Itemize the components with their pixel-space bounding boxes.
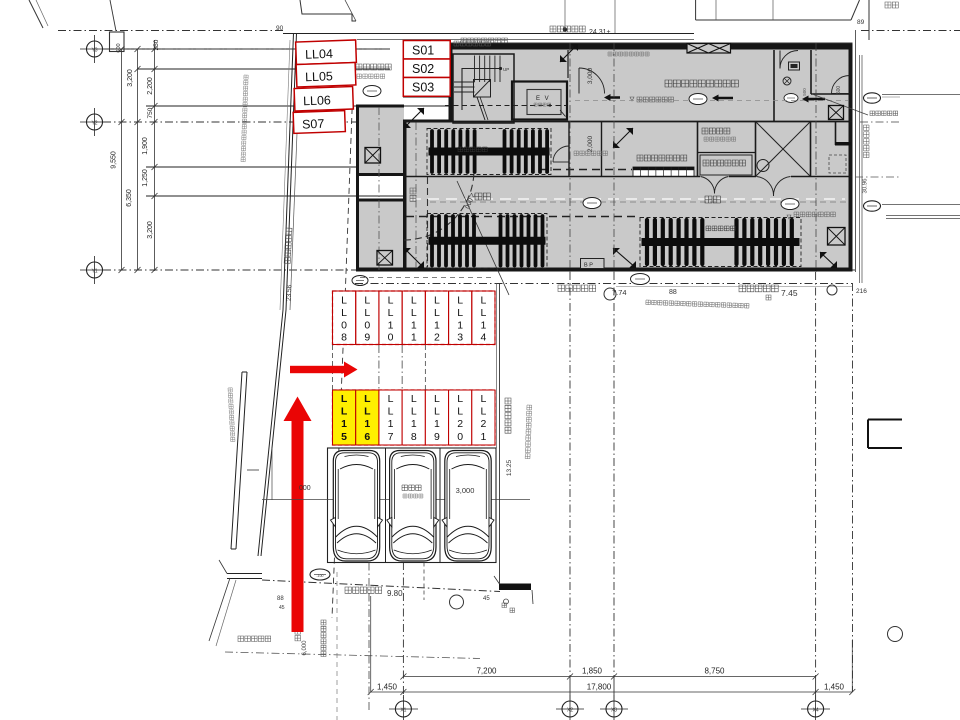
svg-text:1: 1 bbox=[341, 418, 347, 430]
svg-text:750: 750 bbox=[147, 107, 154, 118]
svg-text:S07: S07 bbox=[302, 117, 325, 132]
svg-text:2: 2 bbox=[457, 418, 463, 430]
svg-text:-100: -100 bbox=[316, 574, 323, 578]
svg-text:1,900: 1,900 bbox=[142, 137, 149, 155]
svg-text:9,550: 9,550 bbox=[111, 151, 118, 169]
svg-text:1,450: 1,450 bbox=[377, 683, 398, 692]
svg-text:Y2: Y2 bbox=[91, 121, 97, 127]
svg-text:X3: X3 bbox=[611, 708, 617, 714]
svg-text:L: L bbox=[434, 393, 440, 405]
svg-text:0: 0 bbox=[388, 332, 394, 344]
svg-text:LL04: LL04 bbox=[305, 47, 333, 62]
svg-text:8: 8 bbox=[411, 431, 417, 443]
svg-text:6,350: 6,350 bbox=[126, 189, 133, 207]
svg-text:13.25: 13.25 bbox=[506, 459, 513, 476]
svg-text:L: L bbox=[411, 307, 417, 319]
svg-text:2: 2 bbox=[480, 418, 486, 430]
svg-text:L: L bbox=[364, 406, 371, 418]
svg-text:88: 88 bbox=[277, 596, 284, 602]
svg-text:8: 8 bbox=[341, 332, 347, 344]
svg-text:LL05: LL05 bbox=[305, 69, 333, 84]
svg-text:1,450: 1,450 bbox=[824, 683, 845, 692]
svg-text:89: 89 bbox=[857, 19, 865, 26]
svg-text:1: 1 bbox=[457, 319, 463, 331]
svg-text:L: L bbox=[434, 307, 440, 319]
svg-text:L: L bbox=[411, 393, 417, 405]
svg-text:L: L bbox=[457, 406, 463, 418]
svg-text:L: L bbox=[341, 295, 347, 307]
svg-text:1: 1 bbox=[388, 319, 394, 331]
svg-text:L: L bbox=[364, 393, 371, 405]
svg-text:1: 1 bbox=[364, 418, 370, 430]
svg-text:L: L bbox=[388, 406, 394, 418]
svg-text:6: 6 bbox=[364, 431, 370, 443]
svg-text:X1: X1 bbox=[400, 708, 406, 714]
svg-text:2,200: 2,200 bbox=[147, 77, 154, 95]
svg-text:1: 1 bbox=[434, 319, 440, 331]
svg-text:216: 216 bbox=[856, 288, 867, 295]
svg-text:L: L bbox=[480, 406, 486, 418]
svg-text:90: 90 bbox=[276, 25, 284, 32]
svg-text:2,000: 2,000 bbox=[587, 135, 594, 152]
svg-text:L: L bbox=[434, 295, 440, 307]
svg-text:23.56: 23.56 bbox=[286, 284, 294, 301]
svg-text:6,000: 6,000 bbox=[302, 640, 308, 656]
svg-text:7,200: 7,200 bbox=[476, 667, 497, 676]
svg-text:3,000: 3,000 bbox=[587, 67, 594, 84]
svg-text:Y3: Y3 bbox=[91, 48, 97, 54]
svg-text:3,000: 3,000 bbox=[456, 486, 475, 495]
svg-text:Y1: Y1 bbox=[91, 269, 97, 275]
svg-text:E V: E V bbox=[536, 96, 550, 102]
svg-text:5: 5 bbox=[341, 431, 347, 443]
svg-text:S02: S02 bbox=[412, 62, 434, 76]
svg-text:L: L bbox=[411, 295, 417, 307]
svg-text:1: 1 bbox=[388, 418, 394, 430]
svg-text:L: L bbox=[341, 393, 348, 405]
svg-text:45: 45 bbox=[279, 605, 285, 611]
svg-text:1: 1 bbox=[411, 332, 417, 344]
svg-text:3,200: 3,200 bbox=[147, 221, 154, 239]
svg-text:1: 1 bbox=[411, 319, 417, 331]
svg-text:9: 9 bbox=[364, 332, 370, 344]
svg-text:L: L bbox=[457, 295, 463, 307]
svg-text:X2: X2 bbox=[567, 708, 573, 714]
svg-text:S03: S03 bbox=[412, 81, 434, 95]
svg-text:LL06: LL06 bbox=[303, 93, 331, 108]
svg-text:1: 1 bbox=[480, 431, 486, 443]
svg-text:8,750: 8,750 bbox=[704, 667, 725, 676]
svg-text:1: 1 bbox=[480, 319, 486, 331]
svg-text:88: 88 bbox=[669, 289, 677, 296]
svg-text:7: 7 bbox=[388, 431, 394, 443]
svg-text:L: L bbox=[434, 406, 440, 418]
svg-text:9: 9 bbox=[434, 431, 440, 443]
svg-text:L: L bbox=[364, 295, 370, 307]
svg-text:4: 4 bbox=[480, 332, 486, 344]
svg-text:3,200: 3,200 bbox=[127, 69, 134, 87]
svg-text:500: 500 bbox=[836, 86, 842, 95]
svg-text:600: 600 bbox=[116, 43, 122, 52]
svg-text:B P: B P bbox=[584, 263, 593, 269]
svg-text:UP: UP bbox=[503, 67, 509, 72]
svg-text:1: 1 bbox=[411, 418, 417, 430]
svg-text:30.96: 30.96 bbox=[863, 178, 869, 194]
svg-text:X4: X4 bbox=[813, 708, 819, 714]
svg-text:S01: S01 bbox=[412, 44, 434, 58]
svg-text:L: L bbox=[341, 406, 348, 418]
svg-text:L: L bbox=[388, 307, 394, 319]
svg-text:0: 0 bbox=[341, 319, 347, 331]
svg-text:250: 250 bbox=[153, 39, 160, 50]
svg-text:0: 0 bbox=[457, 431, 463, 443]
svg-text:24.31+: 24.31+ bbox=[589, 29, 611, 36]
svg-text:L: L bbox=[480, 295, 486, 307]
svg-text:17,800: 17,800 bbox=[587, 683, 612, 692]
svg-text:L: L bbox=[411, 406, 417, 418]
svg-text:L: L bbox=[480, 307, 486, 319]
svg-text:L: L bbox=[388, 295, 394, 307]
svg-text:9.80: 9.80 bbox=[387, 589, 403, 598]
svg-text:L: L bbox=[457, 393, 463, 405]
svg-text:1,250: 1,250 bbox=[142, 169, 149, 187]
svg-text:3: 3 bbox=[457, 332, 463, 344]
svg-text:000: 000 bbox=[299, 485, 311, 492]
svg-text:7.45: 7.45 bbox=[781, 288, 798, 298]
svg-text:L: L bbox=[364, 307, 370, 319]
svg-text:500: 500 bbox=[802, 88, 807, 96]
svg-text:L: L bbox=[388, 393, 394, 405]
svg-text:2: 2 bbox=[434, 332, 440, 344]
svg-text:1,850: 1,850 bbox=[582, 667, 603, 676]
svg-text:L: L bbox=[480, 393, 486, 405]
svg-text:L: L bbox=[341, 307, 347, 319]
svg-text:1: 1 bbox=[434, 418, 440, 430]
svg-text:45: 45 bbox=[483, 596, 490, 602]
svg-text:L: L bbox=[457, 307, 463, 319]
svg-text:0: 0 bbox=[364, 319, 370, 331]
